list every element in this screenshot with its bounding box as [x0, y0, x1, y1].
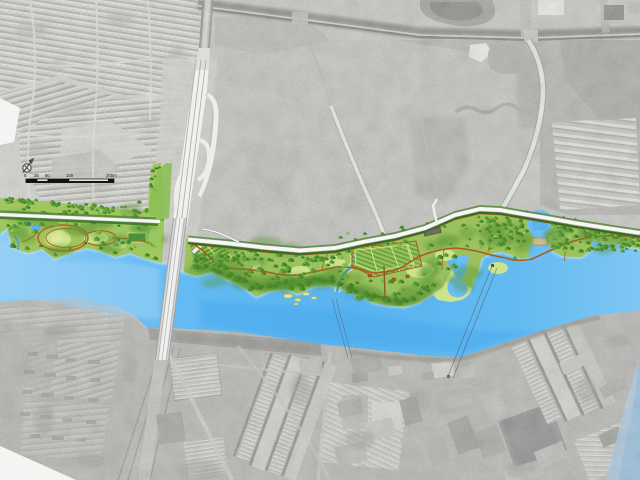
svg-text:25: 25 — [34, 173, 39, 178]
svg-text:100: 100 — [66, 173, 74, 178]
svg-text:200m: 200m — [106, 173, 117, 178]
svg-text:50: 50 — [45, 173, 50, 178]
